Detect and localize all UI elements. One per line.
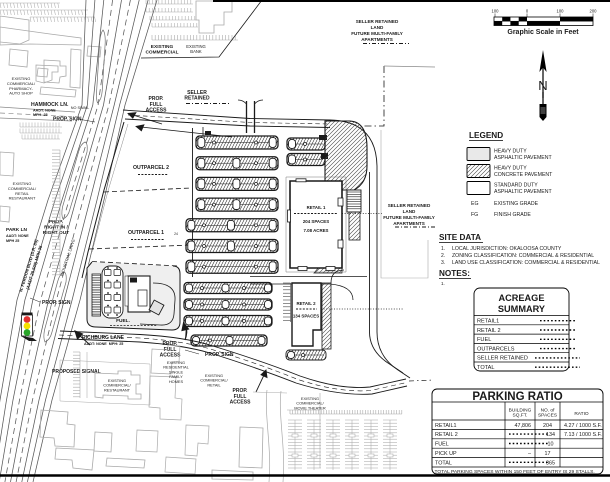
svg-text:47,806: 47,806 [515,423,532,429]
svg-text:PROP. SIGN: PROP. SIGN [42,300,71,306]
svg-text:TOTAL PARKING SPACES WITHIN 15: TOTAL PARKING SPACES WITHIN 150 FEET OF … [435,469,595,475]
svg-text:HEAVY DUTY: HEAVY DUTY [494,149,527,155]
svg-text:RETAIL 2: RETAIL 2 [435,432,458,438]
svg-text:OUTPARCEL 2: OUTPARCEL 2 [133,165,169,171]
svg-text:RETAIL 1: RETAIL 1 [307,205,326,210]
svg-text:OUTPARCELS: OUTPARCELS [477,346,515,352]
svg-text:SELLER RETAINED: SELLER RETAINED [356,19,399,24]
svg-text:AADT: NONE: AADT: NONE [33,108,56,112]
svg-text:AADT: NONE MPH: 25: AADT: NONE MPH: 25 [84,342,123,346]
svg-text:204: 204 [543,423,552,429]
svg-text:N: N [538,78,547,93]
svg-text:FUEL: FUEL [435,442,449,448]
svg-text:HEAVY DUTY: HEAVY DUTY [494,166,527,172]
svg-text:134: 134 [546,432,555,438]
svg-text:ZONING CLASSIFICATION: COMMERC: ZONING CLASSIFICATION: COMMERCIAL & RESI… [452,253,594,259]
svg-text:ACCESS: ACCESS [160,353,182,359]
svg-text:SITE DATA: SITE DATA [439,233,481,242]
svg-text:LAND: LAND [403,209,416,214]
svg-text:4.27 / 1000 S.F.: 4.27 / 1000 S.F. [564,423,602,429]
svg-text:NOTES:: NOTES: [439,269,470,278]
svg-text:100: 100 [557,9,565,14]
svg-text:MPH 25: MPH 25 [6,239,19,243]
svg-text:1.: 1. [441,246,445,252]
svg-text:PARKING RATIO: PARKING RATIO [472,391,562,403]
svg-text:FUEL: FUEL [477,337,491,343]
svg-text:LOCAL JURISDICTION: OKALOOSA C: LOCAL JURISDICTION: OKALOOSA COUNTY [452,246,562,252]
svg-text:PROP. SIGN: PROP. SIGN [205,352,234,358]
svg-text:APARTMENTS: APARTMENTS [393,221,425,226]
svg-text:RETAIL: RETAIL [207,382,221,387]
svg-text:RETAIL1: RETAIL1 [477,319,499,325]
svg-text:1.: 1. [441,281,445,286]
svg-text:SPACES: SPACES [538,413,557,419]
svg-text:LAND USE CLASSIFICATION: COMME: LAND USE CLASSIFICATION: COMMERCIAL & RE… [452,260,600,266]
svg-text:10: 10 [548,442,554,448]
svg-text:TOTAL: TOTAL [435,460,452,466]
svg-text:200: 200 [590,9,598,14]
svg-text:FUEL.: FUEL. [116,318,130,324]
svg-text:LAND: LAND [371,25,384,30]
svg-text:2.: 2. [441,253,445,259]
svg-text:OUTPARCEL 1: OUTPARCEL 1 [128,230,164,236]
svg-text:LEGEND: LEGEND [469,131,503,140]
svg-text:EXISTING GRADE: EXISTING GRADE [494,201,539,207]
svg-text:SUMMARY: SUMMARY [498,304,545,314]
svg-text:Graphic Scale in Feet: Graphic Scale in Feet [507,29,579,36]
svg-text:ASPHALTIC PAVEMENT: ASPHALTIC PAVEMENT [494,155,552,161]
svg-text:MPH: 25: MPH: 25 [33,113,48,117]
svg-text:EXISTING: EXISTING [151,44,174,50]
svg-text:CONCRETE PAVEMENT: CONCRETE PAVEMENT [494,172,553,178]
svg-text:PICK UP: PICK UP [435,451,457,457]
svg-text:7.13 / 1000 S.F.: 7.13 / 1000 S.F. [564,432,602,438]
svg-text:STANDARD DUTY: STANDARD DUTY [494,183,538,189]
svg-text:PROP.: PROP. [49,219,63,225]
svg-text:SELLER RETAINED: SELLER RETAINED [388,203,431,208]
svg-text:FG: FG [471,212,478,218]
svg-text:FUTURE MULTI-FAMILY: FUTURE MULTI-FAMILY [383,215,435,220]
svg-text:–: – [528,451,531,457]
svg-text:FINISH GRADE: FINISH GRADE [494,212,531,218]
svg-text:NO SWAIL: NO SWAIL [71,106,89,110]
svg-text:FUTURE MULTI-FAMILY: FUTURE MULTI-FAMILY [351,31,403,36]
svg-text:ACCESS: ACCESS [146,108,168,114]
svg-text:365: 365 [546,460,555,466]
svg-text:SELLER RETAINED: SELLER RETAINED [477,356,528,362]
svg-text:EG: EG [471,201,479,207]
svg-text:ACREAGE: ACREAGE [499,293,545,303]
svg-text:RICHBURG LANE: RICHBURG LANE [82,335,125,341]
svg-text:HOMES: HOMES [169,379,184,384]
svg-text:ACCESS: ACCESS [230,400,252,406]
svg-text:RETAIL1: RETAIL1 [435,423,456,429]
svg-text:AADT: NONE: AADT: NONE [6,234,29,238]
svg-text:BANK: BANK [190,49,202,54]
svg-text:17: 17 [545,451,551,457]
svg-text:COMMERCIAL: COMMERCIAL [145,49,178,55]
svg-text:HAMMOCK LN.: HAMMOCK LN. [31,102,69,108]
svg-text:RESTAURANT: RESTAURANT [104,387,131,392]
svg-text:204 SPACES: 204 SPACES [303,219,329,224]
svg-text:3.: 3. [441,260,445,266]
svg-text:APARTMENTS: APARTMENTS [361,37,393,42]
svg-text:7.08 ACRES: 7.08 ACRES [304,228,329,233]
svg-text:RESTAURANT: RESTAURANT [9,196,36,201]
svg-text:RATIO: RATIO [574,411,589,417]
svg-text:SQ.FT.: SQ.FT. [513,413,528,419]
svg-text:RETAIL 2: RETAIL 2 [296,301,316,306]
svg-text:TOTAL: TOTAL [477,365,495,371]
svg-text:134 SPACES: 134 SPACES [293,314,319,319]
svg-text:PARK LN: PARK LN [6,227,27,233]
svg-text:100: 100 [492,9,500,14]
svg-text:ASPHALTIC PAVEMENT: ASPHALTIC PAVEMENT [494,189,552,195]
svg-text:PROP. SIGN: PROP. SIGN [53,117,82,123]
svg-text:RETAINED: RETAINED [184,96,210,102]
svg-text:AUTO SHOP: AUTO SHOP [9,91,33,96]
svg-text:24: 24 [174,232,178,236]
svg-text:MOVIE THEATER: MOVIE THEATER [294,405,326,410]
svg-text:RETAIL 2: RETAIL 2 [477,328,501,334]
